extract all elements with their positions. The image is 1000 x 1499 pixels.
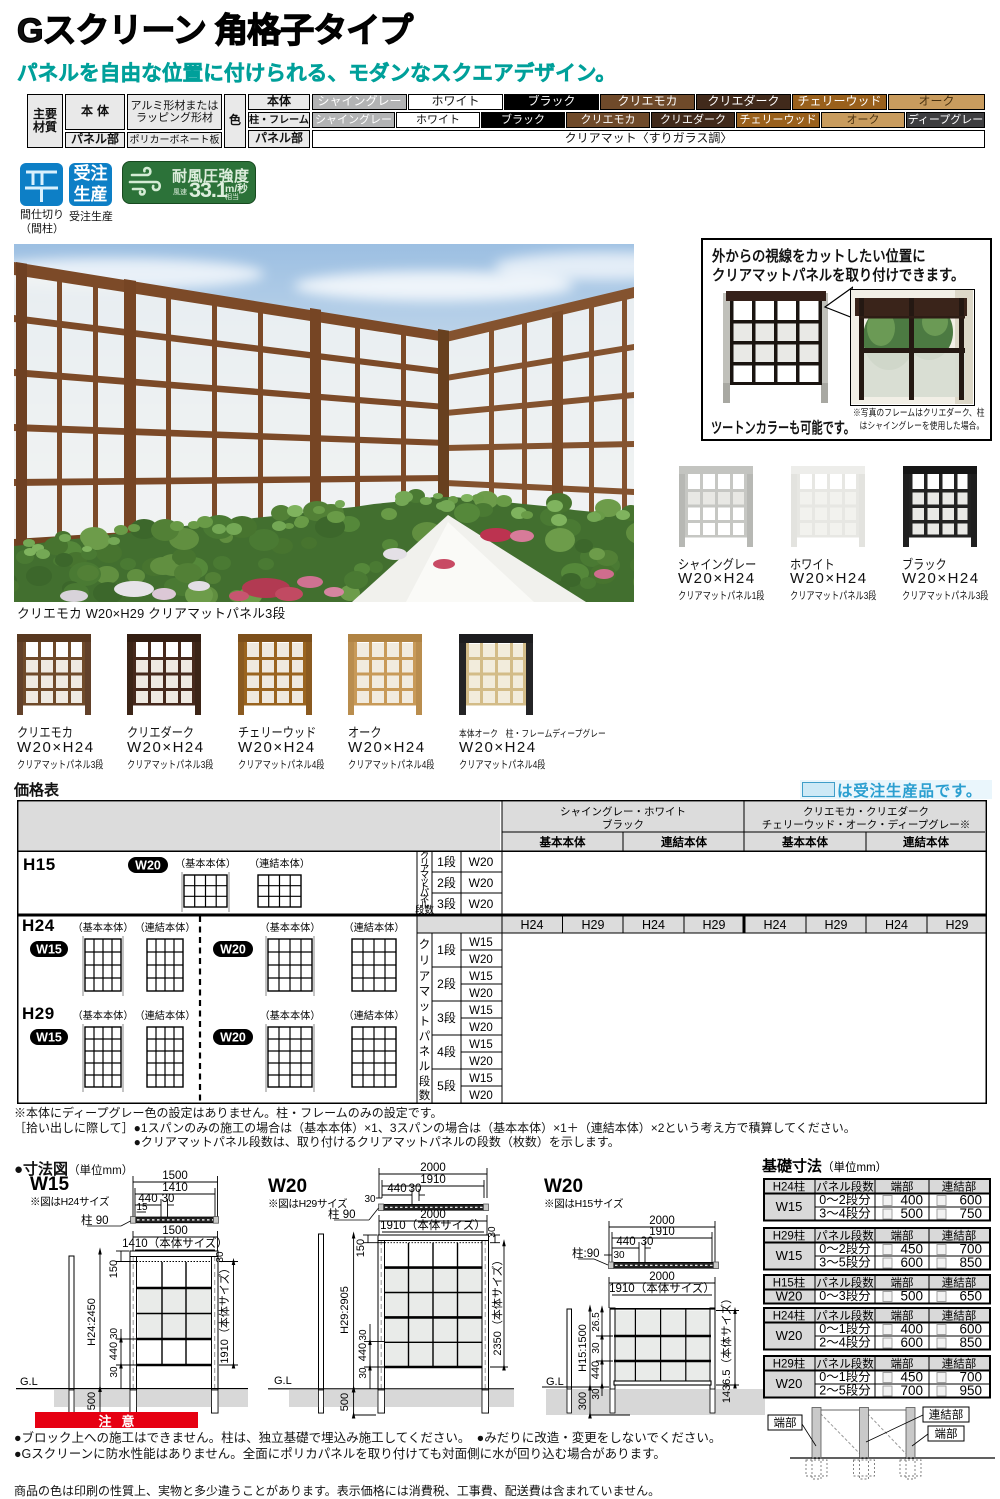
svg-text:H24柱: H24柱 [773,1180,806,1194]
svg-text:2000: 2000 [420,1162,446,1174]
svg-text:連結本体: 連結本体 [661,835,707,849]
svg-text:3〜5段分: 3〜5段分 [819,1255,870,1270]
svg-text:W15: W15 [469,937,493,949]
svg-text:440: 440 [387,1183,406,1195]
svg-text:H24: H24 [885,918,908,932]
svg-text:（基本本体）: （基本本体） [175,857,236,870]
svg-text:2350（本体サイズ）: 2350（本体サイズ） [490,1254,504,1355]
svg-text:0〜2段分: 0〜2段分 [819,1241,870,1256]
svg-text:15: 15 [136,1202,148,1213]
svg-text:440: 440 [357,1343,369,1361]
svg-text:500: 500 [86,1392,98,1410]
svg-text:H29: H29 [703,918,726,932]
svg-text:W20: W20 [776,1376,803,1391]
svg-text:パネル段数: パネル段数 [816,1309,874,1323]
svg-text:30: 30 [641,1236,654,1248]
svg-text:柱 90: 柱 90 [81,1213,109,1227]
svg-text:W20: W20 [469,1022,493,1034]
svg-text:30: 30 [613,1250,625,1261]
svg-text:H29:2905: H29:2905 [339,1286,351,1334]
svg-text:端部: 端部 [891,1357,914,1371]
svg-text:0〜3段分: 0〜3段分 [819,1288,870,1303]
svg-text:1段: 1段 [437,854,456,869]
svg-text:H15柱: H15柱 [773,1276,806,1290]
svg-text:3段: 3段 [437,1010,456,1025]
svg-text:150: 150 [355,1239,367,1257]
svg-text:440: 440 [590,1361,602,1379]
svg-text:850: 850 [959,1335,982,1350]
svg-text:H24: H24 [22,916,55,935]
svg-text:1500: 1500 [162,1170,188,1182]
svg-text:W20: W20 [469,897,494,911]
svg-text:W15: W15 [36,943,62,957]
svg-text:1436.5（本体サイズ）: 1436.5（本体サイズ） [719,1293,733,1403]
svg-text:連結部: 連結部 [929,1408,964,1422]
svg-text:W20: W20 [544,1176,583,1197]
svg-text:チェリーウッド・オーク・ディープグレー※: チェリーウッド・オーク・ディープグレー※ [762,818,970,831]
svg-text:端部: 端部 [891,1180,914,1194]
svg-text:パネル段数: パネル段数 [816,1357,874,1371]
svg-text:基本本体: 基本本体 [781,835,828,849]
svg-text:段: 段 [419,1074,431,1088]
svg-text:950: 950 [959,1383,982,1398]
svg-text:H24: H24 [642,918,665,932]
svg-text:440: 440 [108,1342,120,1360]
svg-text:3〜4段分: 3〜4段分 [819,1206,870,1221]
svg-text:2〜5段分: 2〜5段分 [819,1383,870,1398]
svg-text:W15: W15 [36,1031,62,1045]
svg-text:H29: H29 [825,918,848,932]
svg-text:G.L: G.L [274,1375,292,1387]
svg-text:1500: 1500 [162,1225,188,1237]
svg-text:段数: 段数 [415,904,435,916]
svg-text:W20: W20 [776,1289,803,1304]
svg-text:連結部: 連結部 [942,1309,977,1323]
svg-text:（連結本体）: （連結本体） [343,1009,404,1022]
svg-text:マ: マ [419,986,431,998]
svg-text:0〜1段分: 0〜1段分 [819,1369,870,1384]
svg-text:連結部: 連結部 [942,1357,977,1371]
svg-text:500: 500 [900,1289,923,1304]
svg-text:シャイングレー・ホワイト: シャイングレー・ホワイト [560,805,686,818]
svg-text:W20: W20 [220,1031,246,1045]
svg-text:30: 30 [109,1366,120,1378]
svg-text:30: 30 [215,1251,226,1263]
svg-text:連結部: 連結部 [942,1229,977,1243]
svg-text:（基本本体）: （基本本体） [259,1009,320,1022]
svg-text:数: 数 [419,1088,431,1102]
svg-text:W15: W15 [469,1005,493,1017]
svg-text:2段: 2段 [437,875,456,890]
svg-text:4段: 4段 [437,1044,456,1059]
svg-text:W20: W20 [469,855,494,869]
svg-text:H15: H15 [23,855,56,874]
svg-text:ト: ト [419,1016,431,1028]
svg-text:26.5: 26.5 [591,1312,602,1332]
svg-text:端部: 端部 [891,1229,914,1243]
svg-text:H24柱: H24柱 [773,1309,806,1323]
svg-text:基礎寸法（単位mm）: 基礎寸法（単位mm） [761,1158,887,1175]
svg-text:※図はH15サイズ: ※図はH15サイズ [544,1197,623,1210]
svg-text:3段: 3段 [437,896,456,911]
svg-text:30: 30 [591,1342,602,1354]
svg-text:G.L: G.L [20,1376,38,1388]
svg-text:ア: ア [419,971,431,983]
svg-text:W15: W15 [30,1174,70,1195]
svg-text:W20: W20 [268,1176,307,1197]
svg-text:150: 150 [108,1260,120,1278]
svg-text:端部: 端部 [774,1416,797,1430]
svg-text:1910（本体サイズ）: 1910（本体サイズ） [609,1281,715,1295]
svg-text:リ: リ [419,955,431,967]
svg-text:750: 750 [959,1206,982,1221]
svg-text:1910（本体サイズ）: 1910（本体サイズ） [217,1262,231,1363]
svg-text:※図はH24サイズ: ※図はH24サイズ [30,1195,109,1208]
svg-text:30: 30 [409,1183,422,1195]
svg-text:G.L: G.L [546,1376,564,1388]
svg-text:W15: W15 [776,1248,803,1263]
svg-text:（連結本体）: （連結本体） [134,921,195,934]
svg-text:W20: W20 [469,1056,493,1068]
svg-text:0〜2段分: 0〜2段分 [819,1192,870,1207]
svg-text:H29柱: H29柱 [773,1229,806,1243]
svg-text:ネ: ネ [419,1045,431,1058]
svg-text:W20: W20 [469,876,494,890]
svg-text:H29: H29 [22,1004,55,1023]
svg-text:ッ: ッ [419,1001,431,1013]
svg-text:W20: W20 [220,943,246,957]
svg-text:端部: 端部 [935,1427,958,1441]
svg-text:柱:90: 柱:90 [572,1246,600,1260]
svg-text:W20: W20 [135,859,161,873]
svg-text:（連結本体）: （連結本体） [249,857,310,870]
svg-text:連結部: 連結部 [942,1180,977,1194]
svg-text:ク: ク [419,938,431,951]
svg-text:H29: H29 [946,918,969,932]
svg-text:30: 30 [364,1194,376,1205]
svg-text:500: 500 [900,1206,923,1221]
svg-text:W20: W20 [469,988,493,1000]
svg-text:500: 500 [339,1393,351,1411]
svg-text:W15: W15 [776,1199,803,1214]
svg-text:1910: 1910 [420,1174,446,1186]
svg-text:W15: W15 [469,971,493,983]
svg-text:0〜1段分: 0〜1段分 [819,1321,870,1336]
svg-text:（基本本体）: （基本本体） [72,1009,133,1022]
svg-text:クリエモカ・クリエダーク: クリエモカ・クリエダーク [803,805,929,818]
svg-text:30: 30 [358,1329,369,1341]
svg-text:1410（本体サイズ）: 1410（本体サイズ） [122,1236,228,1250]
svg-text:連結本体: 連結本体 [903,835,949,849]
svg-text:1段: 1段 [437,942,456,957]
svg-text:30: 30 [591,1388,602,1400]
svg-text:2000: 2000 [649,1271,675,1283]
svg-text:30: 30 [358,1367,369,1379]
svg-text:850: 850 [959,1255,982,1270]
svg-text:2段: 2段 [437,976,456,991]
svg-text:600: 600 [900,1335,923,1350]
svg-text:5段: 5段 [437,1078,456,1093]
svg-text:300: 300 [577,1392,589,1410]
svg-text:（連結本体）: （連結本体） [134,1009,195,1022]
svg-text:600: 600 [900,1255,923,1270]
svg-text:440: 440 [616,1236,635,1248]
svg-text:650: 650 [959,1289,982,1304]
svg-text:W20: W20 [776,1328,803,1343]
svg-text:30: 30 [109,1328,120,1340]
svg-text:W20: W20 [469,954,493,966]
svg-text:30: 30 [162,1193,175,1205]
svg-text:柱 90: 柱 90 [328,1207,356,1221]
svg-text:端部: 端部 [891,1276,914,1290]
svg-text:パネル段数: パネル段数 [816,1180,874,1194]
svg-text:端部: 端部 [891,1309,914,1323]
svg-text:W20: W20 [469,1090,493,1102]
svg-text:パ: パ [419,1030,431,1043]
svg-text:H29: H29 [582,918,605,932]
svg-text:ブラック: ブラック [602,818,644,831]
svg-text:W15: W15 [469,1039,493,1051]
svg-text:2〜4段分: 2〜4段分 [819,1335,870,1350]
svg-text:H24:2450: H24:2450 [86,1298,98,1346]
svg-text:W15: W15 [469,1073,493,1085]
svg-text:H29柱: H29柱 [773,1357,806,1371]
svg-text:700: 700 [900,1383,923,1398]
svg-text:連結部: 連結部 [942,1276,977,1290]
svg-text:（基本本体）: （基本本体） [259,921,320,934]
svg-text:ル: ル [419,1061,431,1073]
svg-text:（連結本体）: （連結本体） [343,921,404,934]
svg-text:パネル段数: パネル段数 [816,1276,874,1290]
svg-text:H15:1500: H15:1500 [577,1324,589,1372]
svg-text:H24: H24 [521,918,544,932]
svg-text:1910（本体サイズ）: 1910（本体サイズ） [380,1218,486,1232]
svg-text:H24: H24 [764,918,787,932]
svg-text:（基本本体）: （基本本体） [72,921,133,934]
svg-text:基本本体: 基本本体 [539,835,586,849]
svg-text:30: 30 [487,1226,498,1238]
svg-text:パネル段数: パネル段数 [816,1229,874,1243]
